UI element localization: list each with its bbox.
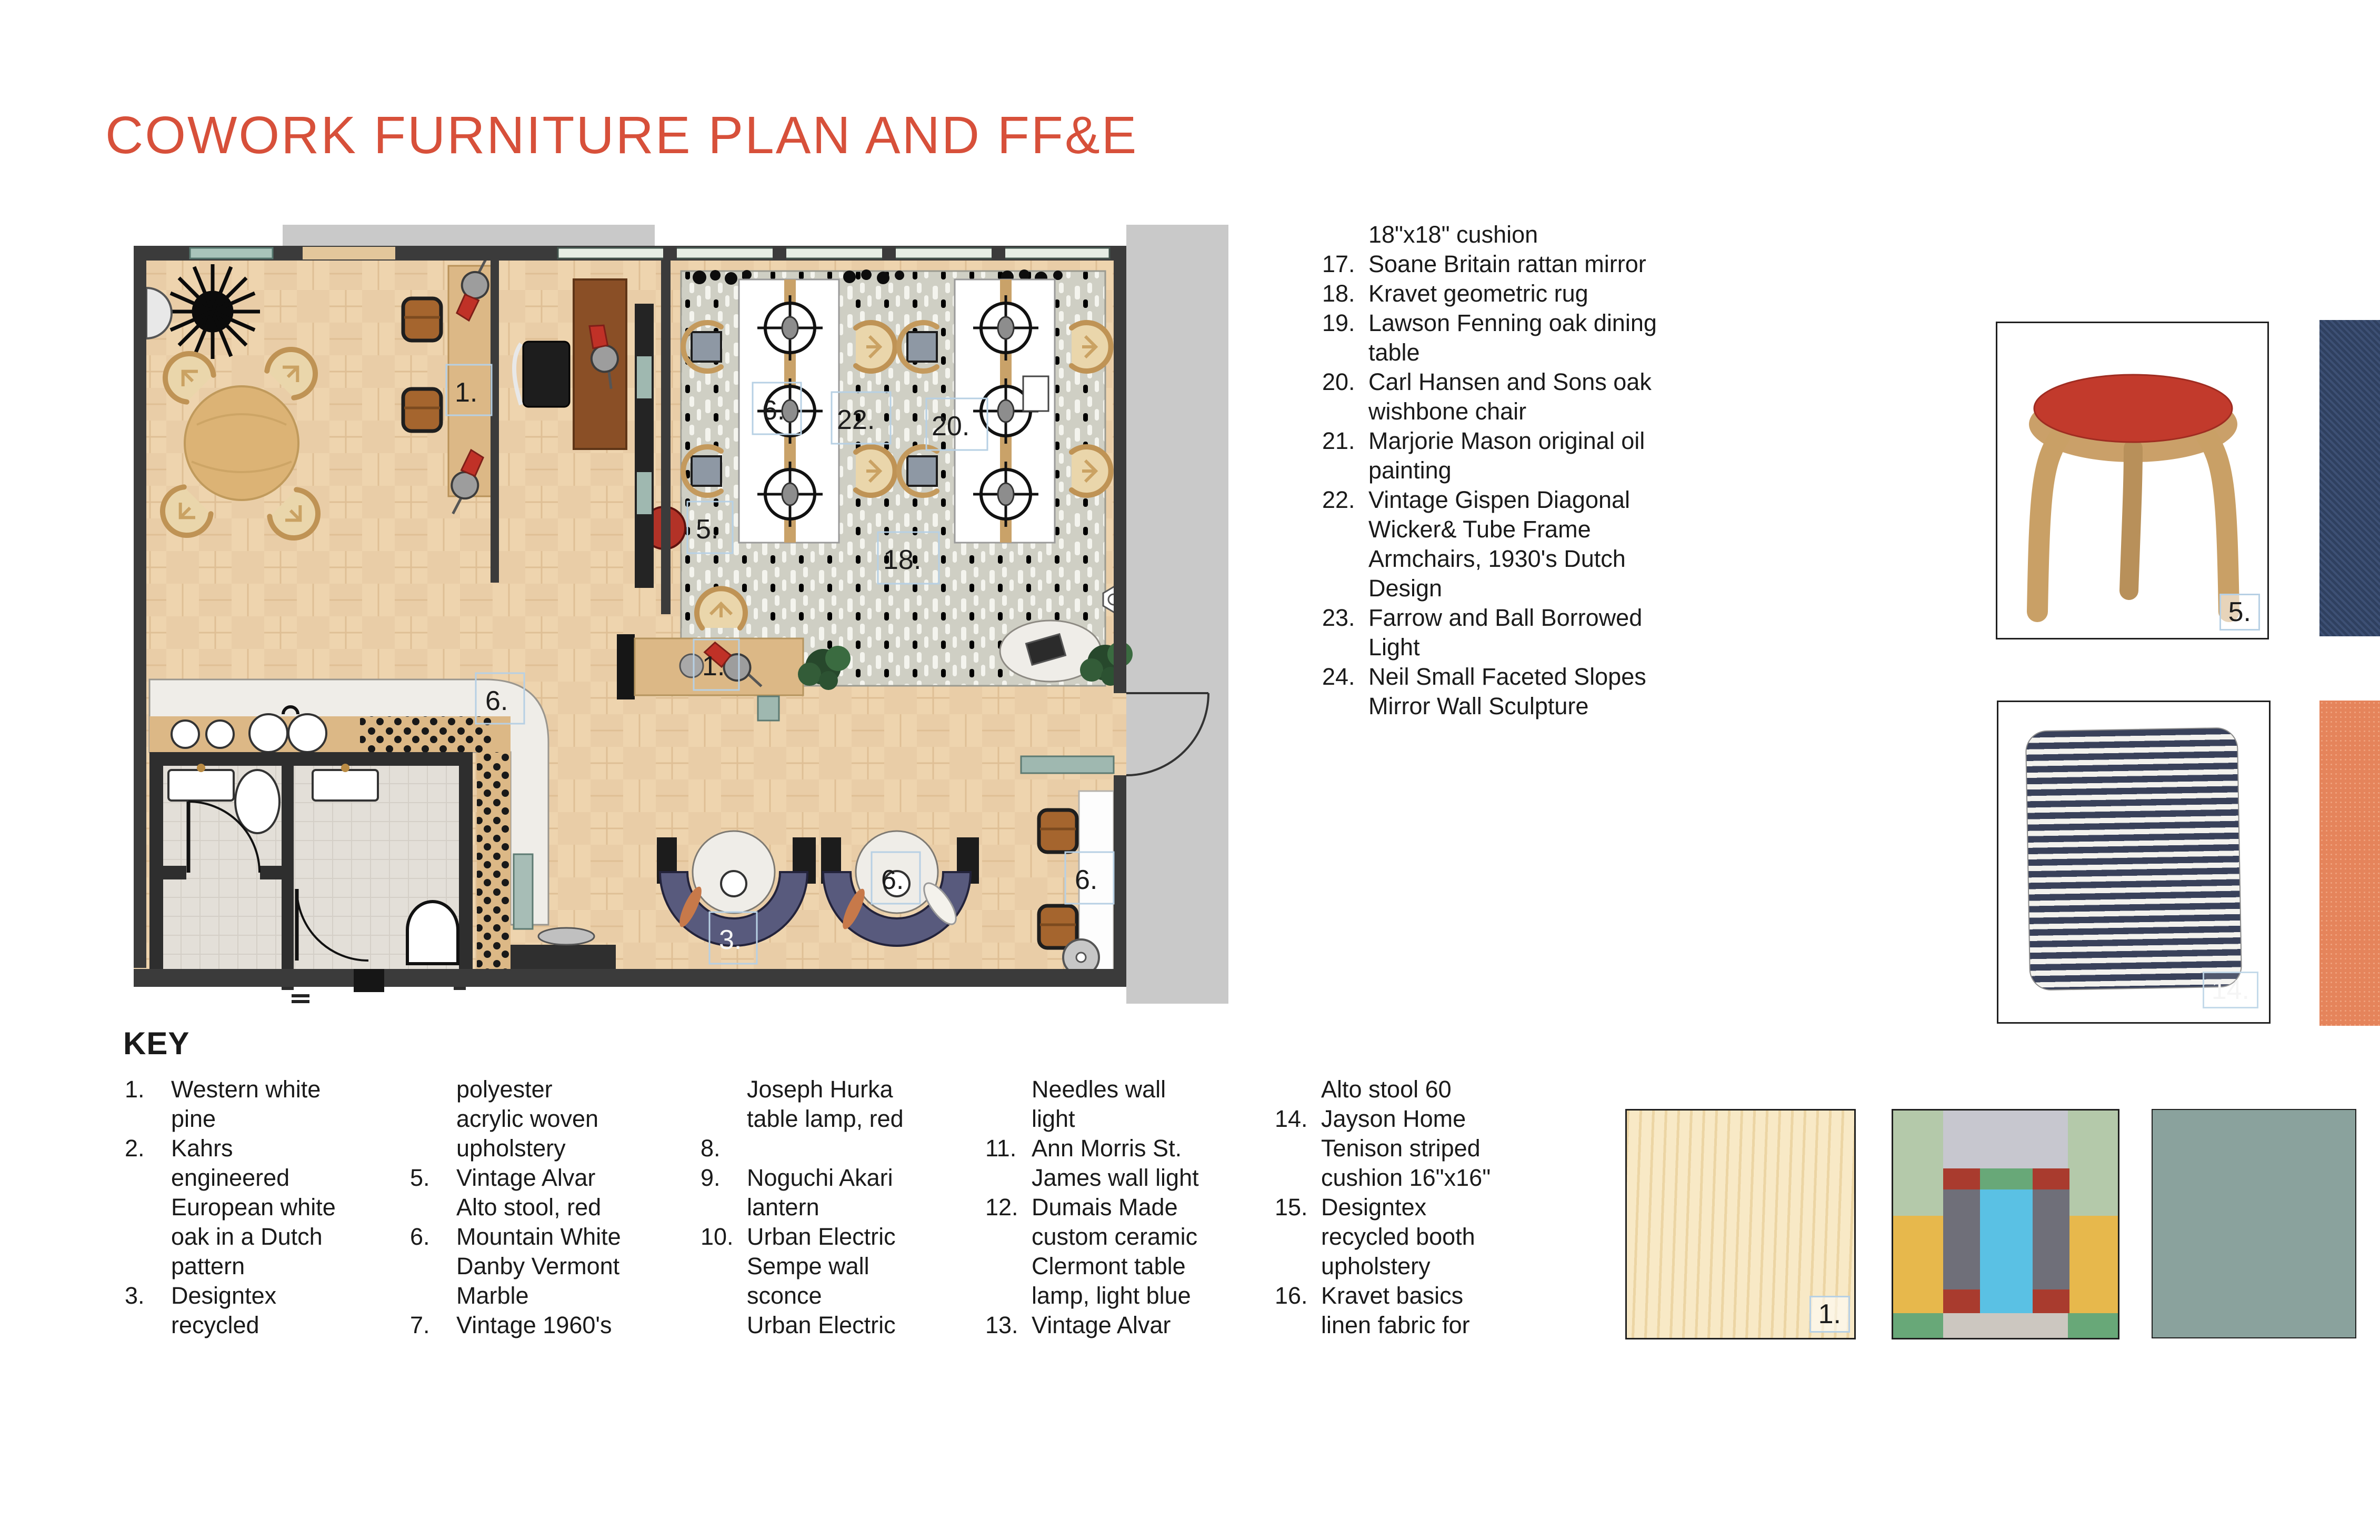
floor-plan-drawing: 1. 6. 22. 20. 5. 18. 1. 6. 3. 6. 6. [134, 225, 1228, 1004]
key-item: polyester acrylic woven upholstery [410, 1075, 705, 1163]
item-number: 19. [1322, 308, 1368, 367]
item-number: 16. [1275, 1281, 1321, 1340]
key-column-1: 1.Western white pine 2.Kahrs engineered … [125, 1075, 419, 1340]
key-item: Alto stool 60 [1275, 1075, 1569, 1104]
item-text: Joseph Hurka table lamp, red [747, 1075, 904, 1134]
item-number: 23. [1322, 603, 1368, 662]
item-text: Vintage Gispen Diagonal Wicker& Tube Fra… [1368, 485, 1630, 603]
orange-linen-swatch [2319, 701, 2380, 1026]
floor-marks [292, 994, 309, 1003]
item-number: 6. [410, 1222, 456, 1311]
item-text: Neil Small Faceted Slopes Mirror Wall Sc… [1368, 662, 1646, 721]
desk-chair [697, 588, 745, 628]
plan-label-6b: 6. [485, 686, 508, 716]
list-item: 20.Carl Hansen and Sons oak wishbone cha… [1322, 367, 1759, 426]
abstract-painting [1893, 1111, 2118, 1338]
item-text: Mountain White Danby Vermont Marble [456, 1222, 621, 1311]
item-number [701, 1075, 747, 1134]
item-text: Kravet geometric rug [1368, 279, 1588, 308]
item-text: Alto stool 60 [1321, 1075, 1452, 1104]
shelf-wall [635, 304, 654, 588]
list-item: 24.Neil Small Faceted Slopes Mirror Wall… [1322, 662, 1759, 721]
key-column-3: Joseph Hurka table lamp, red 8. 9.Noguch… [701, 1075, 995, 1340]
shelf-teal [637, 356, 652, 398]
windows [190, 246, 1109, 261]
navy-fabric-swatch [2319, 320, 2380, 636]
item-number: 18. [1322, 279, 1368, 308]
item-text: Jayson Home Tenison striped cushion 16"x… [1321, 1104, 1491, 1193]
item-text: Designtex recycled booth upholstery [1321, 1193, 1475, 1281]
item-text: Lawson Fenning oak dining table [1368, 308, 1657, 367]
toilet [407, 902, 458, 964]
dining-table-round [185, 386, 298, 500]
plan-label-1b: 1. [702, 651, 725, 682]
item-number: 3. [125, 1281, 171, 1340]
item-number: 17. [1322, 249, 1368, 279]
item-number: 21. [1322, 426, 1368, 485]
key-column-4: Needles wall light 11.Ann Morris St. Jam… [985, 1075, 1280, 1340]
item-text: Noguchi Akari lantern [747, 1163, 893, 1222]
page-title: COWORK FURNITURE PLAN AND FF&E [105, 105, 1138, 166]
item-number: 10. [701, 1222, 747, 1340]
key-item: 2.Kahrs engineered European white oak in… [125, 1134, 419, 1281]
bathrooms [149, 752, 473, 990]
item-text: Urban Electric Sempe wall sconce Urban E… [747, 1222, 896, 1340]
sage-paint-swatch [2152, 1109, 2356, 1338]
item-number: 5. [410, 1163, 456, 1222]
item-number: 9. [701, 1163, 747, 1222]
plan-label-3: 3. [719, 925, 742, 955]
key-item: 7.Vintage 1960's [410, 1311, 705, 1340]
stool-photo-card: 5. [1996, 322, 2269, 639]
list-item: 21.Marjorie Mason original oil painting [1322, 426, 1759, 485]
floor-plan: 1. 6. 22. 20. 5. 18. 1. 6. 3. 6. 6. [134, 225, 1228, 1004]
item-number: 13. [985, 1311, 1032, 1340]
key-heading: KEY [123, 1025, 189, 1062]
item-text: polyester acrylic woven upholstery [456, 1075, 598, 1163]
item-text: Carl Hansen and Sons oak wishbone chair [1368, 367, 1652, 426]
item-number: 2. [125, 1134, 171, 1281]
item-text: Vintage 1960's [456, 1311, 612, 1340]
item-number: 8. [701, 1134, 747, 1163]
item-text: Ann Morris St. James wall light [1032, 1134, 1199, 1193]
key-item: 14.Jayson Home Tenison striped cushion 1… [1275, 1104, 1569, 1193]
key-item: 1.Western white pine [125, 1075, 419, 1134]
item-number: 12. [985, 1193, 1032, 1311]
item-text: Needles wall light [1032, 1075, 1166, 1134]
plan-label-1: 1. [455, 377, 477, 408]
urchin-pendant [165, 264, 260, 359]
item-number: 15. [1275, 1193, 1321, 1281]
item-number: 11. [985, 1134, 1032, 1193]
item-text: Farrow and Ball Borrowed Light [1368, 603, 1642, 662]
plan-label-20: 20. [932, 411, 969, 442]
item-text: Kravet basics linen fabric for [1321, 1281, 1470, 1340]
item-number [985, 1075, 1032, 1134]
item-number [1322, 220, 1368, 249]
item-number: 1. [125, 1075, 171, 1134]
item-text: Dumais Made custom ceramic Clermont tabl… [1032, 1193, 1197, 1311]
item-number: 7. [410, 1311, 456, 1340]
key-item: 16.Kravet basics linen fabric for [1275, 1281, 1569, 1340]
key-item: 3.Designtex recycled [125, 1281, 419, 1340]
item-number: 24. [1322, 662, 1368, 721]
key-item: Joseph Hurka table lamp, red [701, 1075, 995, 1134]
key-item: 8. [701, 1134, 995, 1163]
item-text: Kahrs engineered European white oak in a… [171, 1134, 336, 1281]
alto-stool-image [1997, 323, 2267, 638]
wood-label: 1. [1809, 1296, 1850, 1333]
item-number [410, 1075, 456, 1163]
item-text: Designtex recycled [171, 1281, 276, 1340]
item-text: Vintage Alvar Alto stool, red [456, 1163, 601, 1222]
item-number: 14. [1275, 1104, 1321, 1193]
ffe-list: 18"x18" cushion 17.Soane Britain rattan … [1322, 220, 1759, 721]
key-item: 11.Ann Morris St. James wall light [985, 1134, 1280, 1193]
key-item: 5.Vintage Alvar Alto stool, red [410, 1163, 705, 1222]
plan-label-6d: 6. [1075, 865, 1097, 895]
item-text: Vintage Alvar [1032, 1311, 1171, 1340]
stool-label: 5. [2219, 594, 2260, 631]
pine-wood-swatch: 1. [1625, 1109, 1856, 1339]
plan-label-6c: 6. [881, 865, 904, 895]
shelf-teal [637, 472, 652, 514]
plan-label-18: 18. [883, 545, 921, 575]
oil-painting-swatch [1892, 1109, 2119, 1339]
list-item: 22.Vintage Gispen Diagonal Wicker& Tube … [1322, 485, 1759, 603]
key-item: 9.Noguchi Akari lantern [701, 1163, 995, 1222]
key-item: Needles wall light [985, 1075, 1280, 1134]
key-column-5: Alto stool 60 14.Jayson Home Tenison str… [1275, 1075, 1569, 1340]
plan-label-6a: 6. [762, 395, 785, 426]
outside-top [283, 225, 655, 246]
list-item: 17.Soane Britain rattan mirror [1322, 249, 1759, 279]
key-item: 10.Urban Electric Sempe wall sconce Urba… [701, 1222, 995, 1340]
key-column-2: polyester acrylic woven upholstery 5.Vin… [410, 1075, 705, 1340]
list-item: 23.Farrow and Ball Borrowed Light [1322, 603, 1759, 662]
key-item: 12.Dumais Made custom ceramic Clermont t… [985, 1193, 1280, 1311]
plan-label-22: 22. [837, 405, 875, 435]
plan-label-5: 5. [696, 514, 718, 545]
item-text: Western white pine [171, 1075, 321, 1134]
work-table-1 [739, 279, 839, 543]
list-item: 19.Lawson Fenning oak dining table [1322, 308, 1759, 367]
pillow-photo-card: 14. [1997, 701, 2271, 1024]
item-text: Marjorie Mason original oil painting [1368, 426, 1645, 485]
item-number [1275, 1075, 1321, 1104]
item-text: Soane Britain rattan mirror [1368, 249, 1646, 279]
outside-corridor [1126, 225, 1228, 1004]
item-text: 18"x18" cushion [1368, 220, 1538, 249]
paper [1023, 376, 1048, 411]
list-item: 18.Kravet geometric rug [1322, 279, 1759, 308]
item-number: 20. [1322, 367, 1368, 426]
presentation-board: COWORK FURNITURE PLAN AND FF&E [0, 0, 2380, 1540]
list-item: 18"x18" cushion [1322, 220, 1759, 249]
key-item: 6.Mountain White Danby Vermont Marble [410, 1222, 705, 1311]
pillow-label: 14. [2203, 972, 2258, 1008]
item-number: 22. [1322, 485, 1368, 603]
key-item: 13.Vintage Alvar [985, 1311, 1280, 1340]
key-item: 15.Designtex recycled booth upholstery [1275, 1193, 1569, 1281]
